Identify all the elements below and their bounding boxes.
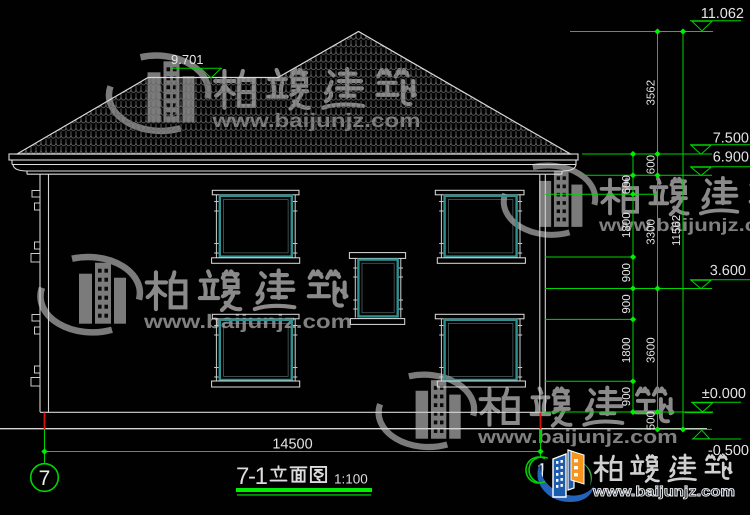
svg-text:±0.000: ±0.000 xyxy=(702,386,746,402)
svg-text:1:100: 1:100 xyxy=(334,472,368,487)
svg-text:7: 7 xyxy=(39,467,51,490)
svg-text:600: 600 xyxy=(621,175,633,194)
svg-text:www.baijunjz.com: www.baijunjz.com xyxy=(592,483,735,499)
svg-text:900: 900 xyxy=(621,387,633,406)
svg-text:7.500: 7.500 xyxy=(713,131,749,147)
svg-text:600: 600 xyxy=(646,155,658,174)
svg-text:3.600: 3.600 xyxy=(710,263,746,279)
svg-text:3300: 3300 xyxy=(646,219,658,245)
svg-text:11562: 11562 xyxy=(671,215,683,246)
svg-text:3600: 3600 xyxy=(646,337,658,363)
svg-text:1800: 1800 xyxy=(621,212,633,238)
svg-text:900: 900 xyxy=(621,294,633,313)
svg-text:7-1: 7-1 xyxy=(236,463,268,490)
svg-text:6.900: 6.900 xyxy=(713,150,749,166)
svg-text:14500: 14500 xyxy=(272,437,312,453)
svg-text:900: 900 xyxy=(621,263,633,282)
svg-text:11.062: 11.062 xyxy=(701,6,744,22)
svg-text:1800: 1800 xyxy=(621,338,633,364)
svg-text:500: 500 xyxy=(646,411,658,430)
svg-text:3562: 3562 xyxy=(646,80,658,106)
svg-text:9.701: 9.701 xyxy=(171,52,204,67)
